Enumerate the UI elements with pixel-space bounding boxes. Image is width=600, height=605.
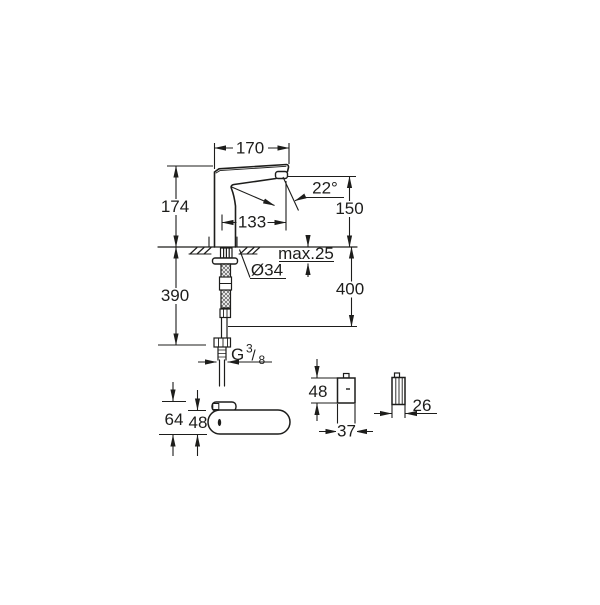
- thread-letter-label: G: [231, 345, 244, 364]
- dim-control-box-depth-label: 26: [413, 396, 432, 415]
- supply-hose: [214, 264, 232, 347]
- control-box-front-view: [338, 374, 356, 404]
- mounting-shank: [213, 248, 238, 264]
- dim-top-view-total-depth: 64: [162, 382, 186, 456]
- top-view-dimensions: 64 48: [159, 382, 207, 456]
- dim-body-height: 174: [158, 166, 213, 247]
- dim-hose-length-label: 400: [336, 280, 364, 299]
- top-view-lever-tab: [213, 404, 219, 410]
- dim-control-box-height-label: 48: [309, 382, 328, 401]
- technical-drawing-canvas: 170 174 150 22°: [0, 0, 600, 600]
- g-thread-tail: [218, 347, 226, 386]
- control-box-front-body: [338, 378, 356, 403]
- faucet-spec-drawing: 170 174 150 22°: [0, 0, 600, 600]
- dim-outlet-height-label: 150: [335, 199, 363, 218]
- dim-control-box-width-label: 37: [337, 422, 356, 441]
- dim-hole-diameter-label: Ø34: [251, 261, 283, 280]
- dim-top-view-body-depth-label: 48: [189, 413, 208, 432]
- control-box-side-body: [392, 378, 405, 405]
- dim-control-box-width: 37: [319, 404, 373, 441]
- dim-thread-size: G 3 / 8: [198, 342, 272, 368]
- dim-stream-angle-label: 22°: [312, 179, 338, 198]
- dim-control-box-height: 48: [309, 359, 337, 421]
- dim-top-view-total-depth-label: 64: [165, 410, 184, 429]
- faucet-top-view: [208, 402, 290, 434]
- dim-max-deck-thickness: max.25: [278, 237, 334, 278]
- dim-outlet-projection-label: 133: [238, 213, 266, 232]
- dim-spout-width-label: 170: [236, 139, 264, 158]
- dim-length-below-deck-label: 390: [161, 286, 189, 305]
- dim-body-height-label: 174: [161, 197, 189, 216]
- aerator-outlet: [276, 172, 288, 179]
- top-view-sensor-dot: [218, 419, 221, 426]
- dim-length-below-deck: 390: [158, 247, 206, 345]
- dim-max-deck-thickness-label: max.25: [278, 244, 334, 263]
- thread-denominator-label: 8: [259, 353, 266, 367]
- control-box-side-view: [392, 373, 405, 405]
